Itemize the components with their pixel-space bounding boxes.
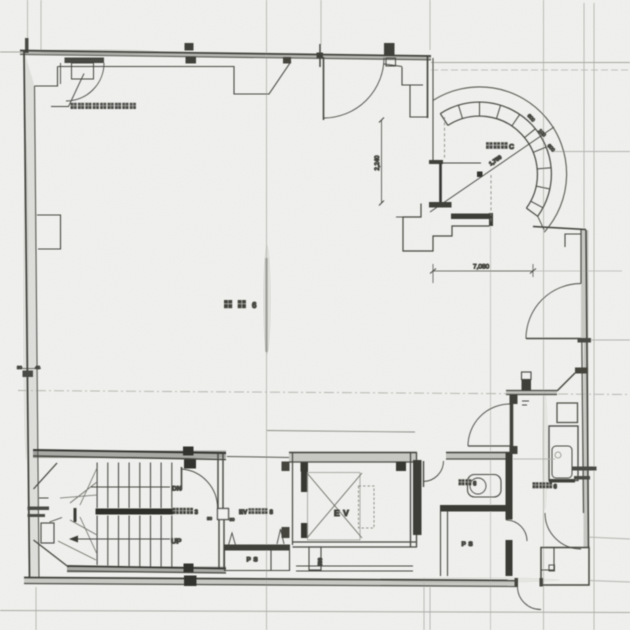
- svg-text:UP: UP: [171, 537, 181, 546]
- svg-text:500: 500: [318, 558, 324, 567]
- svg-text:PS: PS: [462, 541, 476, 548]
- svg-text:7,080: 7,080: [473, 264, 490, 271]
- svg-text:6: 6: [252, 301, 257, 310]
- svg-text:30: 30: [207, 516, 213, 521]
- svg-text:2,240: 2,240: [375, 155, 381, 171]
- svg-text:PS: PS: [247, 557, 261, 564]
- svg-text:30: 30: [17, 365, 23, 370]
- svg-text:30: 30: [230, 517, 236, 522]
- svg-text:40: 40: [35, 365, 41, 370]
- svg-text:DN: DN: [172, 486, 182, 493]
- svg-text:3: 3: [195, 509, 199, 516]
- svg-text:EV: EV: [239, 509, 248, 516]
- svg-text:C: C: [509, 144, 514, 151]
- svg-text:8: 8: [270, 509, 274, 516]
- svg-text:EV: EV: [334, 508, 352, 518]
